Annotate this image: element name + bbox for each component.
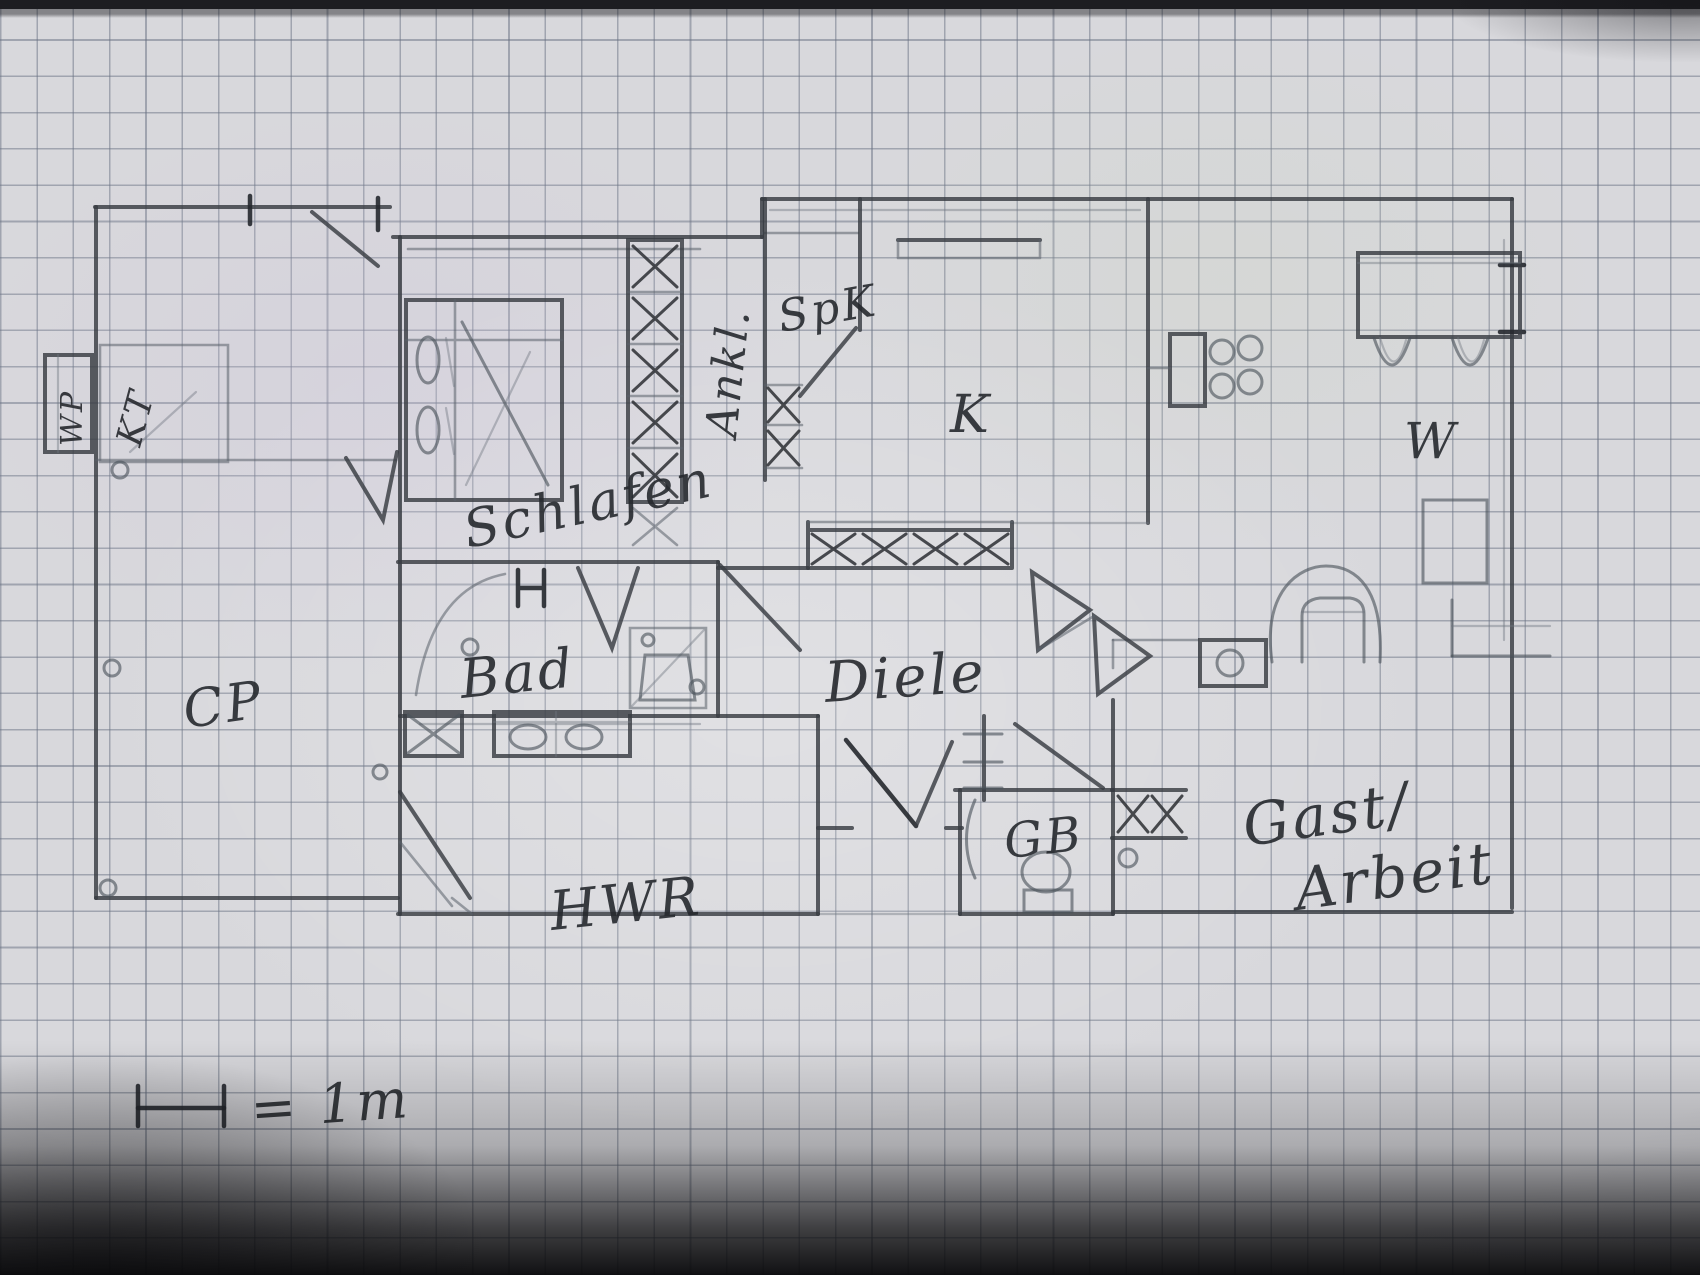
gb-door-arc bbox=[967, 800, 976, 878]
bad-sink-counter bbox=[494, 712, 630, 756]
pedestal-circle bbox=[1217, 650, 1243, 676]
door-zigzag-triangle-1 bbox=[1032, 572, 1090, 650]
stove-burner-4 bbox=[1238, 370, 1262, 394]
hwr-stair-hatch-3 bbox=[452, 898, 472, 914]
label-schlafen: Schlafen bbox=[458, 449, 718, 560]
bad-sink-basin-1 bbox=[510, 725, 546, 749]
hwr-stair-hatch-1 bbox=[400, 792, 470, 898]
label-hwr: HWR bbox=[546, 864, 705, 943]
photo-of-floorplan-sketch: Schlafen Bad HWR Diele SpK K Ankl. W GB … bbox=[0, 0, 1700, 1275]
mark-gast-o bbox=[1119, 849, 1137, 867]
bad-sink-basin-2 bbox=[566, 725, 602, 749]
label-wp: WP bbox=[55, 389, 90, 446]
room-labels: Schlafen Bad HWR Diele SpK K Ankl. W GB … bbox=[55, 275, 1499, 943]
door-zigzag-triangle-2 bbox=[1094, 616, 1150, 694]
island-strip-x-hatch bbox=[812, 534, 1008, 564]
spk-x-hatch bbox=[768, 388, 799, 465]
door-zigzag-link bbox=[1038, 616, 1094, 650]
label-bad: Bad bbox=[456, 636, 578, 711]
spk-hatch-frame bbox=[765, 385, 802, 468]
scale-legend: = 1m bbox=[138, 1067, 413, 1141]
label-wohnen: W bbox=[1404, 412, 1459, 470]
label-gb: GB bbox=[1001, 806, 1086, 870]
label-diele: Diele bbox=[821, 640, 988, 716]
door-gb-swing bbox=[1015, 724, 1103, 788]
bed-pillow-2 bbox=[417, 407, 439, 453]
bed-blanket-fold-2 bbox=[466, 352, 530, 485]
kitchen-counter-inner bbox=[898, 240, 1040, 258]
bed-pillow-ticks bbox=[446, 338, 454, 454]
dining-table bbox=[1358, 253, 1520, 337]
label-kueche: K bbox=[949, 385, 992, 445]
label-kt: KT bbox=[109, 385, 164, 452]
bad-wc bbox=[640, 655, 695, 700]
stove-stub bbox=[1170, 334, 1205, 406]
stove-burner-1 bbox=[1210, 340, 1234, 364]
post-mark-4 bbox=[373, 765, 387, 779]
scale-text: = 1m bbox=[249, 1067, 413, 1141]
pedestal-box bbox=[1200, 640, 1266, 686]
label-carport: CP bbox=[179, 670, 267, 741]
coffee-table bbox=[1423, 500, 1487, 583]
hwr-stair-hatch-2 bbox=[400, 842, 452, 906]
door-entry-leaf bbox=[846, 740, 916, 826]
door-entry-swing bbox=[916, 742, 952, 826]
floorplan-drawing: Schlafen Bad HWR Diele SpK K Ankl. W GB … bbox=[0, 0, 1700, 1275]
bad-sink-counter-line bbox=[494, 712, 630, 756]
stove-burner-3 bbox=[1238, 336, 1262, 360]
label-ankleide: Ankl. bbox=[696, 305, 761, 443]
post-mark-2 bbox=[104, 660, 120, 676]
door-bedroom-diele bbox=[720, 565, 800, 650]
door-bad-handle bbox=[518, 570, 544, 606]
post-mark-3 bbox=[100, 880, 116, 896]
gast-x-hatch bbox=[1118, 796, 1182, 832]
armchair-seat bbox=[1302, 598, 1364, 662]
bad-washer-x bbox=[408, 715, 459, 753]
stove-burner-2 bbox=[1210, 374, 1234, 398]
post-mark-1 bbox=[112, 462, 128, 478]
label-spk: SpK bbox=[774, 275, 882, 343]
door-carport-top-swing bbox=[312, 212, 378, 266]
mark-shower-o bbox=[642, 634, 654, 646]
door-bedroom-v bbox=[346, 452, 397, 520]
bed-pillow-1 bbox=[417, 337, 439, 383]
gast-hatch-frame bbox=[1112, 790, 1186, 838]
